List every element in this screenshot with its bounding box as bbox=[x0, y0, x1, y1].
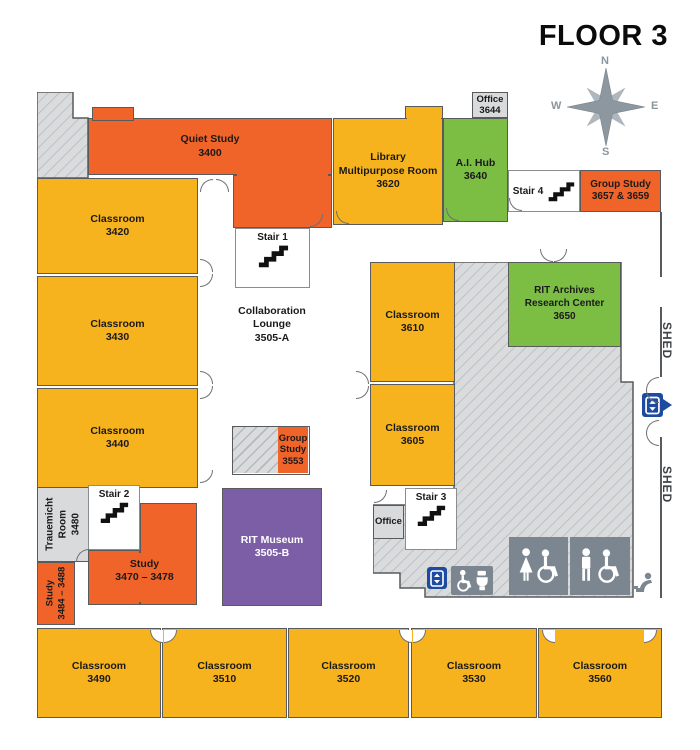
elevator-exit-arrow-icon bbox=[663, 399, 672, 411]
room-name: RIT Museum bbox=[241, 534, 303, 547]
womens-accessible-restroom-icon bbox=[515, 547, 563, 585]
room-name: Group Study bbox=[590, 179, 651, 191]
compass-west-label: W bbox=[551, 100, 561, 112]
room-name: A.I. Hub bbox=[456, 157, 496, 170]
room-number: 3610 bbox=[385, 322, 439, 335]
room-number: 3644 bbox=[477, 105, 504, 116]
stair-label: Stair 2 bbox=[99, 489, 130, 500]
door-arc bbox=[646, 420, 659, 433]
room-classroom-3430: Classroom3430 bbox=[37, 276, 198, 386]
wall-segment bbox=[660, 307, 662, 377]
room-name: Classroom bbox=[447, 660, 501, 673]
mens-restroom bbox=[570, 537, 630, 595]
shed-label-upper: SHED bbox=[660, 322, 674, 359]
elevator-icon bbox=[427, 567, 447, 589]
door-arc bbox=[200, 274, 213, 287]
room-classroom-3510: Classroom3510 bbox=[162, 628, 287, 718]
room-number: 3480 bbox=[70, 498, 83, 551]
room-name: Trauemicht bbox=[44, 498, 57, 551]
room-name2: Room bbox=[57, 498, 70, 551]
shed-label-lower: SHED bbox=[660, 466, 674, 503]
room-collaboration-lounge: CollaborationLounge3505-A bbox=[217, 305, 327, 345]
stair-1: Stair 1 bbox=[235, 228, 310, 288]
room-number: 3505-B bbox=[241, 547, 303, 560]
room-name: Library bbox=[339, 151, 438, 164]
door-arc bbox=[356, 386, 369, 399]
room-name: Quiet Study bbox=[181, 133, 240, 146]
room-name: Classroom bbox=[385, 422, 439, 435]
accessible-restroom-icon bbox=[451, 566, 493, 595]
room-classroom-3420: Classroom3420 bbox=[37, 178, 198, 274]
door-arc bbox=[356, 371, 369, 384]
page-title: FLOOR 3 bbox=[538, 20, 668, 53]
room-library-3620: LibraryMultipurpose Room3620 bbox=[333, 118, 443, 225]
room-name: Classroom bbox=[321, 660, 375, 673]
room-rit-museum-3505b: RIT Museum3505-B bbox=[222, 488, 322, 606]
door-arc bbox=[646, 377, 659, 390]
drinking-fountain-icon bbox=[630, 571, 656, 597]
room-office-small: Office bbox=[373, 505, 404, 539]
room-classroom-3605: Classroom3605 bbox=[370, 384, 455, 486]
room-name: Classroom bbox=[72, 660, 126, 673]
hatched-area-3553 bbox=[233, 427, 278, 473]
door-arc bbox=[200, 470, 213, 483]
stair-label: Stair 3 bbox=[416, 492, 447, 503]
room-name: RIT Archives bbox=[525, 285, 604, 298]
room-study-3470 bbox=[140, 503, 197, 605]
room-classroom-3530: Classroom3530 bbox=[411, 628, 537, 718]
compass-south-label: S bbox=[602, 146, 609, 158]
room-name: Classroom bbox=[90, 318, 144, 331]
room-name: Group bbox=[279, 433, 308, 444]
stairs-icon bbox=[416, 503, 446, 527]
door-arc bbox=[200, 386, 213, 399]
mens-accessible-restroom-icon bbox=[576, 547, 624, 585]
room-name: Study bbox=[44, 567, 56, 620]
room-name2: Lounge bbox=[217, 318, 327, 331]
room-name: Classroom bbox=[90, 425, 144, 438]
stairs-icon bbox=[547, 180, 575, 202]
room-number: 3484 – 3488 bbox=[56, 567, 68, 620]
room-name: Classroom bbox=[197, 660, 251, 673]
door-arc bbox=[540, 249, 553, 262]
room-number: 3560 bbox=[573, 673, 627, 686]
room-name2: Research Center bbox=[525, 298, 604, 311]
room-number: 3400 bbox=[181, 147, 240, 160]
room-name2: Study bbox=[279, 444, 308, 455]
room-name: Office bbox=[477, 94, 504, 105]
room-name: Collaboration bbox=[217, 305, 327, 318]
door-arc bbox=[646, 433, 659, 446]
room-number: 3520 bbox=[321, 673, 375, 686]
room-study-3470-label: Study3470 – 3478 bbox=[92, 558, 197, 585]
room-number: 3553 bbox=[279, 456, 308, 467]
room-classroom-3490: Classroom3490 bbox=[37, 628, 161, 718]
floor-plan: FLOOR 3 N W E S Quiet Study 3400 Classro… bbox=[0, 0, 700, 750]
room-number: 3470 – 3478 bbox=[92, 571, 197, 584]
compass-east-label: E bbox=[651, 100, 658, 112]
room-ai-hub-3640: A.I. Hub3640 bbox=[443, 118, 508, 222]
room-number: 3430 bbox=[90, 331, 144, 344]
room-number: 3505-A bbox=[217, 332, 327, 345]
stairs-icon bbox=[99, 500, 129, 524]
door-arc bbox=[554, 249, 567, 262]
room-study-3484: Study3484 – 3488 bbox=[37, 562, 75, 625]
room-rit-archives-3650: RIT ArchivesResearch Center3650 bbox=[508, 262, 621, 347]
room-group-study-3657: Group Study3657 & 3659 bbox=[580, 170, 661, 212]
room-quiet-study-3400: Quiet Study 3400 bbox=[88, 118, 332, 175]
room-name: Classroom bbox=[573, 660, 627, 673]
room-number: 3640 bbox=[456, 170, 496, 183]
compass-rose-icon bbox=[565, 66, 647, 148]
room-number: 3510 bbox=[197, 673, 251, 686]
door-arc bbox=[216, 179, 229, 192]
room-group-study-3553: GroupStudy3553 bbox=[232, 426, 310, 475]
wall-segment bbox=[660, 212, 662, 277]
womens-restroom bbox=[509, 537, 568, 595]
room-name2: Multipurpose Room bbox=[339, 165, 438, 178]
door-arc bbox=[200, 259, 213, 272]
room-classroom-3520: Classroom3520 bbox=[288, 628, 409, 718]
room-number: 3440 bbox=[90, 438, 144, 451]
room-number: 3490 bbox=[72, 673, 126, 686]
hatched-area-top-left bbox=[37, 92, 89, 179]
room-name: Classroom bbox=[90, 213, 144, 226]
stair-label: Stair 1 bbox=[257, 232, 288, 243]
compass-north-label: N bbox=[601, 55, 609, 67]
room-number: 3657 & 3659 bbox=[590, 191, 651, 203]
room-name: Classroom bbox=[385, 309, 439, 322]
stair-label: Stair 4 bbox=[513, 186, 544, 197]
room-name: Study bbox=[92, 558, 197, 571]
door-arc bbox=[200, 179, 213, 192]
room-classroom-3610: Classroom3610 bbox=[370, 262, 455, 382]
room-number: 3620 bbox=[339, 178, 438, 191]
room-number: 3650 bbox=[525, 311, 604, 324]
stair-3: Stair 3 bbox=[405, 488, 457, 550]
stair-2: Stair 2 bbox=[88, 485, 140, 550]
room-office-3644: Office3644 bbox=[472, 92, 508, 118]
door-arc bbox=[200, 371, 213, 384]
room-name: Office bbox=[375, 516, 402, 527]
room-number: 3420 bbox=[90, 226, 144, 239]
stairs-icon bbox=[257, 243, 289, 268]
room-number: 3605 bbox=[385, 435, 439, 448]
room-number: 3530 bbox=[447, 673, 501, 686]
wall-segment bbox=[660, 437, 662, 598]
room-classroom-3440: Classroom3440 bbox=[37, 388, 198, 488]
